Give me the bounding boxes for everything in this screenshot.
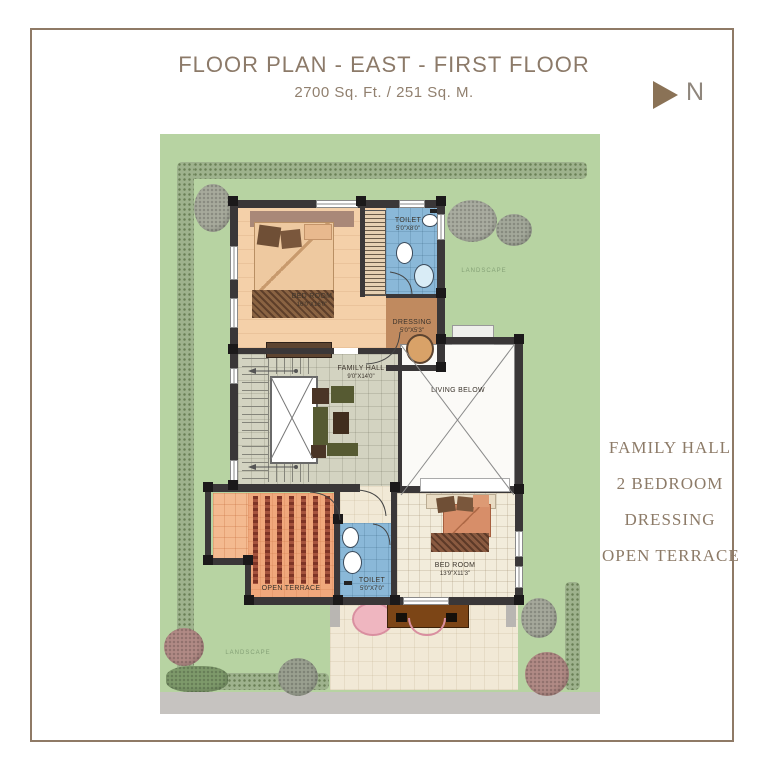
terrace-left-floor [213, 493, 248, 558]
dressing-label: DRESSING 5'0"X5'3" [386, 318, 438, 336]
sofa [331, 386, 354, 403]
window [515, 531, 523, 557]
armchair [311, 445, 326, 458]
column [436, 196, 446, 206]
wall [437, 337, 523, 344]
stair-run [268, 462, 314, 482]
column [356, 196, 366, 206]
wall [334, 486, 340, 605]
wc-icon [343, 551, 362, 574]
living-below-label: LIVING BELOW [408, 386, 508, 395]
column [436, 288, 446, 298]
door-opening [334, 348, 358, 354]
pergola-beam [313, 496, 318, 584]
bed2-pillow [456, 496, 474, 512]
window [230, 460, 238, 482]
window [437, 214, 445, 240]
column [333, 514, 343, 524]
pergola-beam [289, 496, 294, 584]
hedge-top [183, 162, 587, 179]
column [333, 595, 343, 605]
bed2-pillow [473, 495, 489, 507]
pilaster [330, 605, 340, 627]
column [243, 555, 253, 565]
sofa [313, 407, 328, 445]
bush-icon [166, 666, 228, 692]
wall [205, 484, 211, 565]
landscape-label: LANDSCAPE [212, 650, 284, 656]
pergola-beam [253, 496, 258, 584]
column [228, 196, 238, 206]
column [244, 595, 254, 605]
legend-item: 2 BEDROOM [602, 474, 738, 494]
column [514, 334, 524, 344]
stair-run [242, 358, 269, 482]
wall [515, 337, 523, 497]
toilet2-label: TOILET 5'0"X7'0" [352, 576, 392, 594]
window [316, 200, 358, 208]
room-legend: FAMILY HALL 2 BEDROOM DRESSING OPEN TERR… [602, 438, 738, 582]
column [436, 362, 446, 372]
north-label: N [686, 78, 704, 107]
north-arrow-icon [653, 81, 678, 109]
window [515, 566, 523, 588]
column [228, 344, 238, 354]
column [514, 484, 524, 494]
tap-icon [344, 581, 352, 585]
column [203, 482, 213, 492]
shower-base-icon [414, 264, 434, 288]
column [203, 555, 213, 565]
column [390, 482, 400, 492]
bed2-blanket [431, 533, 489, 552]
tree-icon [278, 658, 318, 696]
legend-item: OPEN TERRACE [602, 546, 738, 566]
tree-icon [194, 184, 232, 232]
window [230, 298, 238, 328]
pergola-beam [277, 496, 282, 584]
pilaster [506, 605, 516, 627]
hedge-left [177, 162, 194, 690]
wall [360, 207, 365, 297]
pergola-beam [325, 496, 330, 584]
wall [245, 597, 523, 605]
page-title: FLOOR PLAN - EAST - FIRST FLOOR [0, 52, 768, 78]
column [228, 480, 238, 490]
landscape-label: LANDSCAPE [448, 268, 520, 274]
bay-window [420, 478, 510, 492]
toilet1-label: TOILET 5'0"X8'0" [386, 216, 430, 234]
window [399, 200, 425, 208]
legend-item: FAMILY HALL [602, 438, 738, 458]
window [230, 246, 238, 280]
bed2-pillow [436, 496, 456, 513]
desk-handle [446, 613, 457, 622]
wall [230, 348, 402, 354]
window [403, 597, 449, 605]
bed1-pillow [257, 225, 282, 248]
open-terrace-label: OPEN TERRACE [248, 584, 334, 593]
family-hall-label: FAMILY HALL 9'0"X14'0" [328, 364, 394, 382]
wc-icon [396, 242, 413, 264]
floor-plan-page: FLOOR PLAN - EAST - FIRST FLOOR 2700 Sq.… [0, 0, 768, 768]
tree-icon [521, 598, 557, 638]
bed1-pillow [304, 224, 332, 240]
sink-icon [342, 527, 359, 548]
wall [398, 354, 402, 486]
stair-run [268, 356, 314, 374]
tree-icon [447, 200, 497, 242]
pergola-beam [301, 496, 306, 584]
bedroom2-label: BED ROOM 13'9"X11'3" [410, 561, 500, 579]
stool-icon [406, 334, 434, 364]
legend-item: DRESSING [602, 510, 738, 530]
tree-icon [525, 652, 569, 696]
armchair [312, 388, 329, 404]
column [390, 595, 400, 605]
tree-icon [164, 628, 204, 666]
tree-icon [496, 214, 532, 246]
coffee-table [333, 412, 349, 434]
bed1-pillow [280, 229, 302, 249]
window [230, 368, 238, 384]
column [514, 595, 524, 605]
road-strip [160, 692, 600, 714]
desk-handle [396, 613, 407, 622]
sofa [327, 443, 358, 456]
bedroom1-label: BED ROOM 16'0"X16'0" [262, 292, 362, 310]
wardrobe [364, 210, 386, 296]
pergola-beam [265, 496, 270, 584]
